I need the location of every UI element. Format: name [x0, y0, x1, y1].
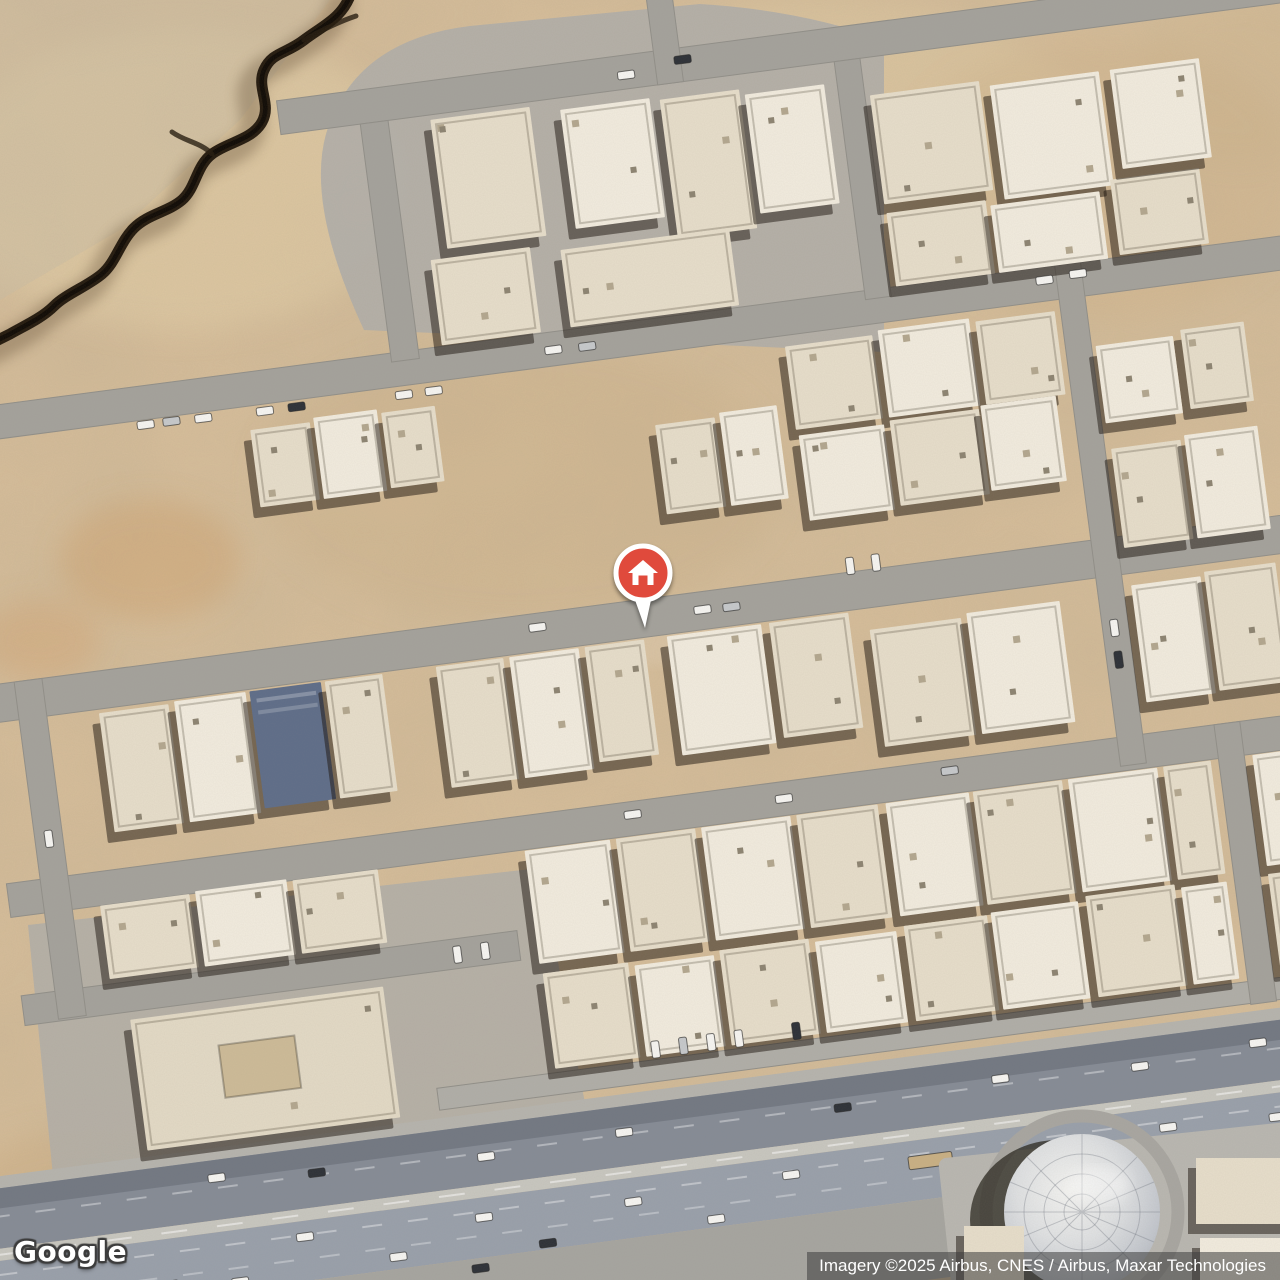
- google-logo[interactable]: Google: [14, 1235, 127, 1268]
- satellite-map-viewport[interactable]: Google Imagery ©2025 Airbus, CNES / Airb…: [0, 0, 1280, 1280]
- home-pin-marker[interactable]: [607, 540, 679, 636]
- attribution-bar: Imagery ©2025 Airbus, CNES / Airbus, Max…: [807, 1252, 1280, 1280]
- pin-stem: [635, 600, 651, 628]
- attribution-text: Imagery ©2025 Airbus, CNES / Airbus, Max…: [819, 1256, 1266, 1275]
- house-door: [639, 576, 648, 586]
- imagery-grain: [0, 0, 1280, 1280]
- satellite-imagery: [0, 0, 1280, 1280]
